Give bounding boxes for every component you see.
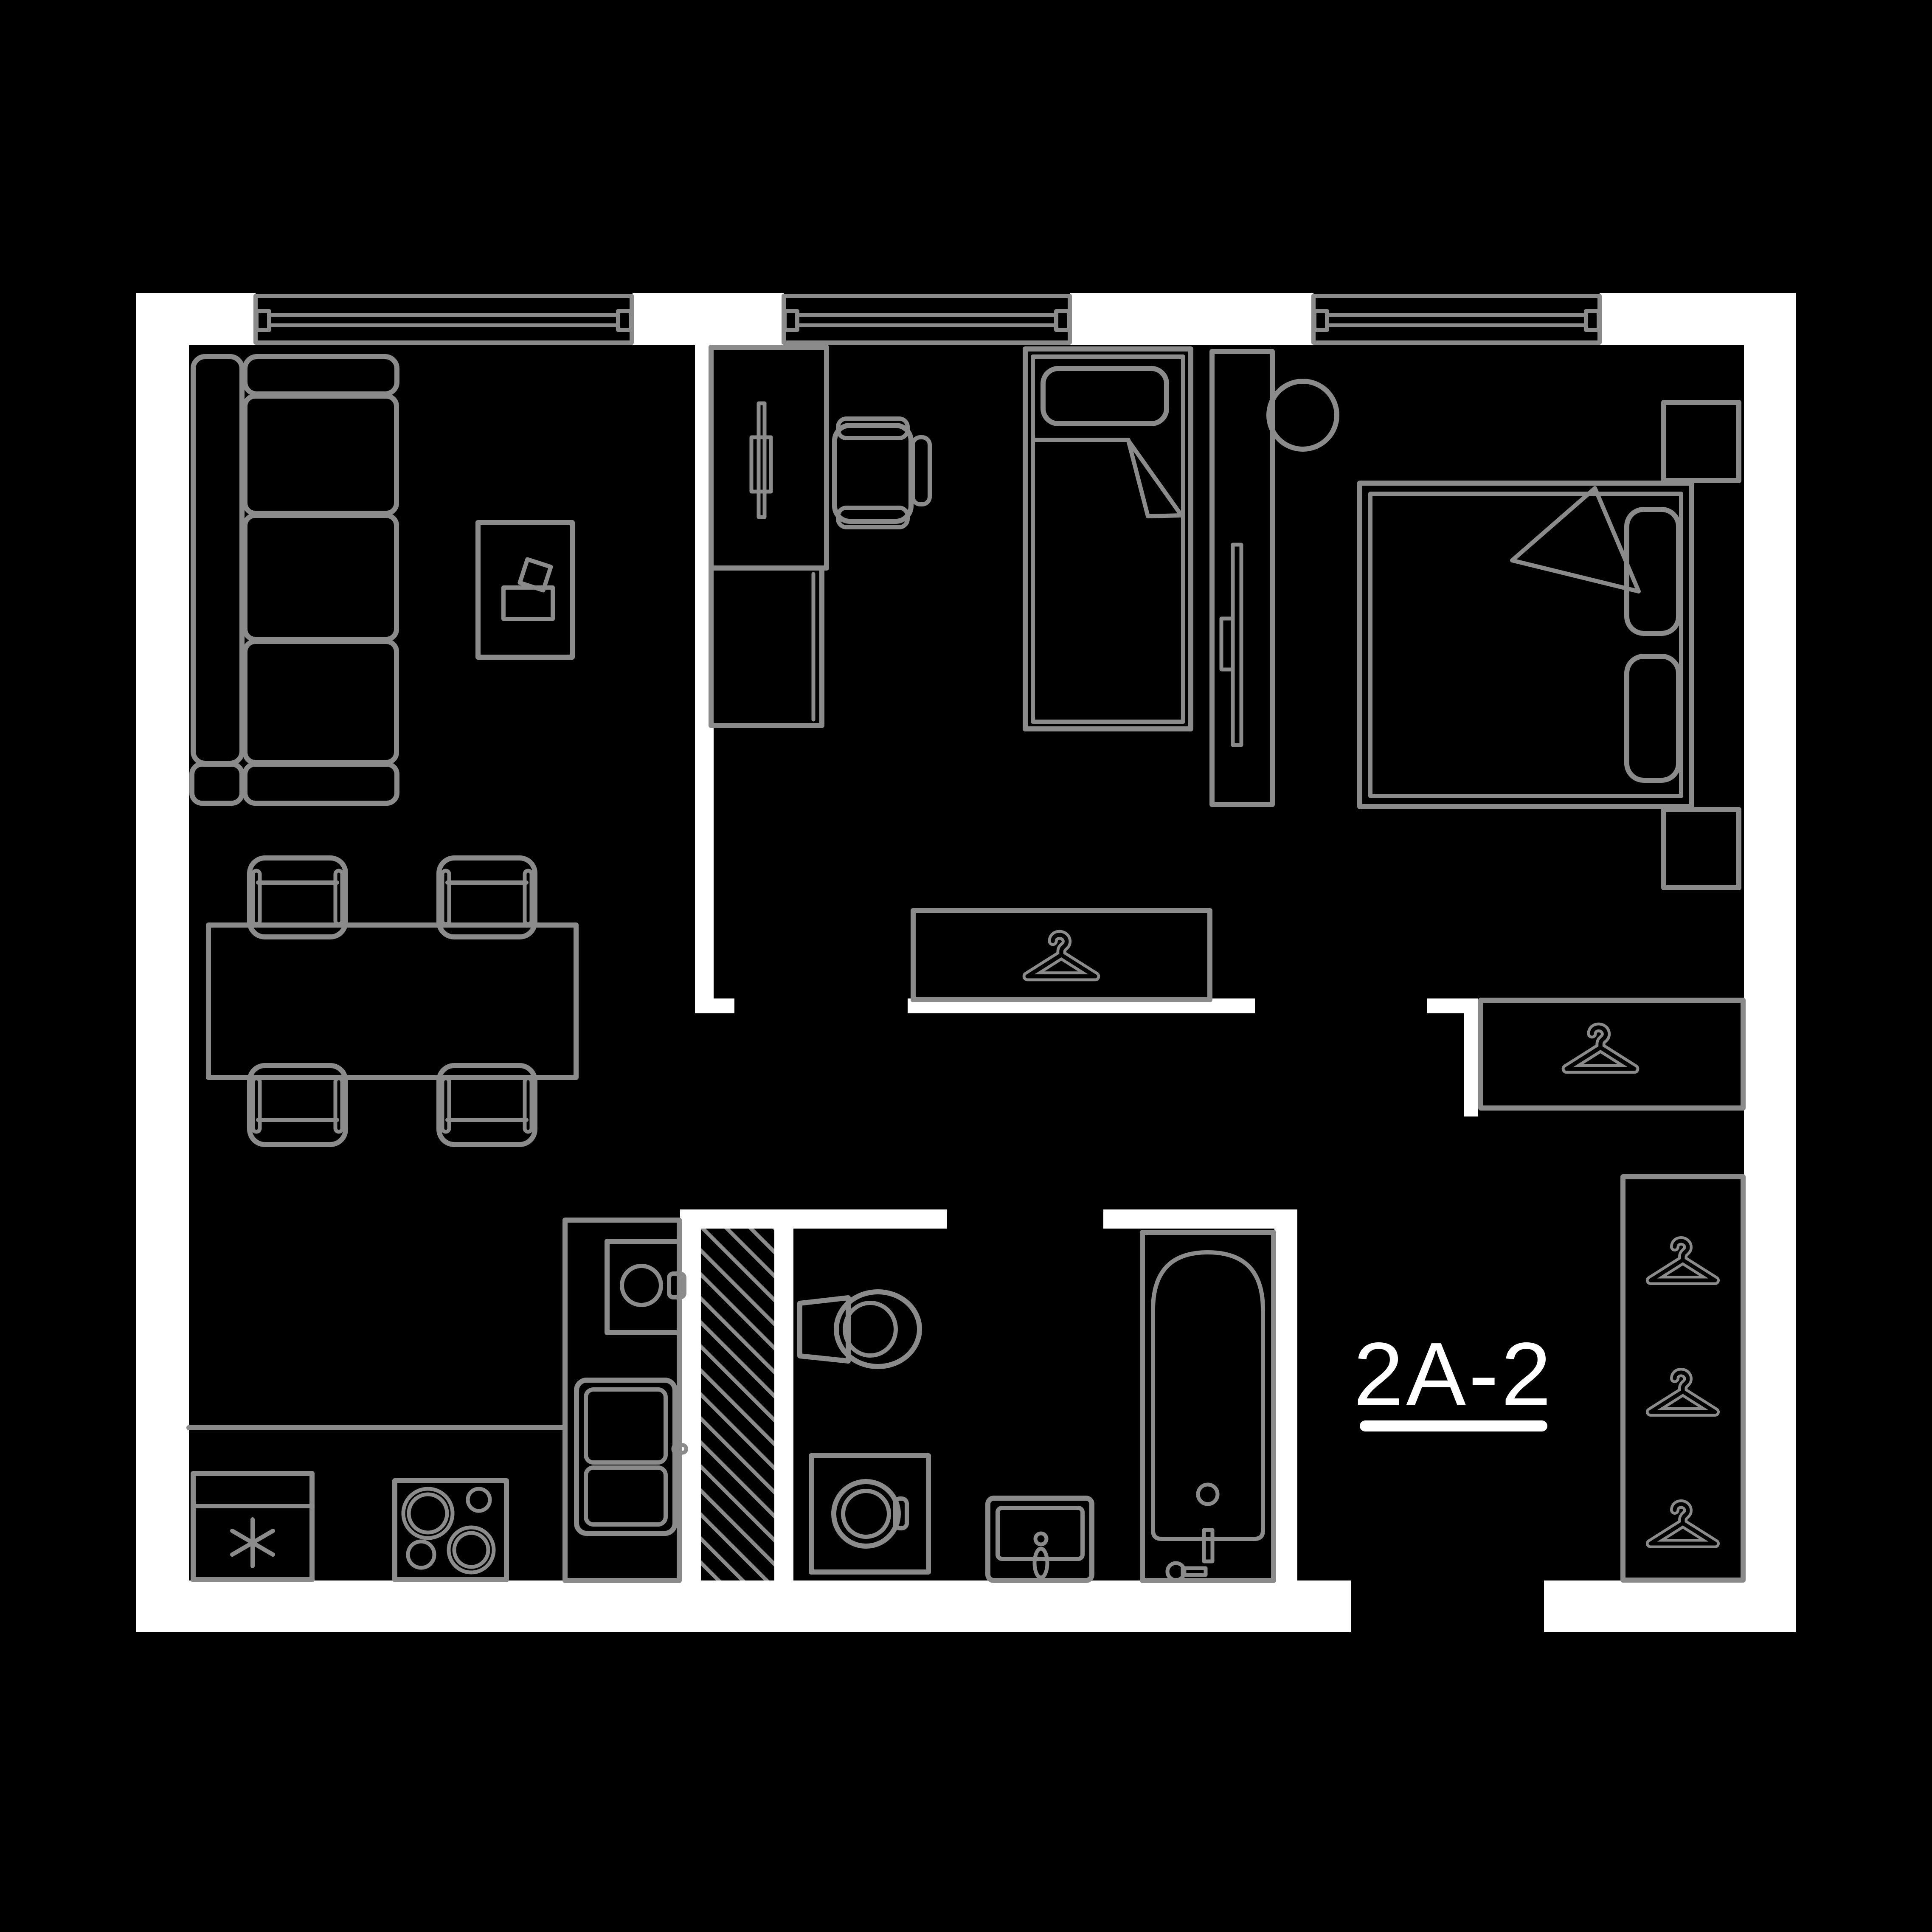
wall-top-pier-2 (633, 293, 784, 345)
wall-living-bedroom2-foot (714, 998, 734, 1013)
wall-bathroom-top-right (1103, 1209, 1297, 1229)
wall-bottom-left (136, 1580, 1351, 1632)
wall-top-pier-1 (136, 293, 256, 345)
wall-bathroom-entry (1274, 1229, 1297, 1580)
unit-label: 2A-2 (1353, 1324, 1554, 1424)
wall-left (136, 293, 189, 1632)
wall-bathroom-top-left (680, 1209, 947, 1229)
wall-right (1744, 293, 1796, 1632)
floor-plan-page: 2A-2 (0, 0, 1932, 1932)
unit-label-underline (1360, 1420, 1547, 1431)
wall-hallway-closet-side (1464, 1013, 1478, 1116)
wall-shaft-bathroom (774, 1229, 793, 1580)
floor-plan-drawing: 2A-2 (0, 0, 1932, 1932)
wall-top-pier-4 (1600, 293, 1796, 345)
wall-hallway-closet-top (1427, 998, 1478, 1013)
wall-top-pier-3 (1070, 293, 1313, 345)
wall-bottom-right (1544, 1580, 1796, 1632)
service-shaft-hatch (701, 1229, 774, 1580)
background (0, 0, 1932, 1932)
